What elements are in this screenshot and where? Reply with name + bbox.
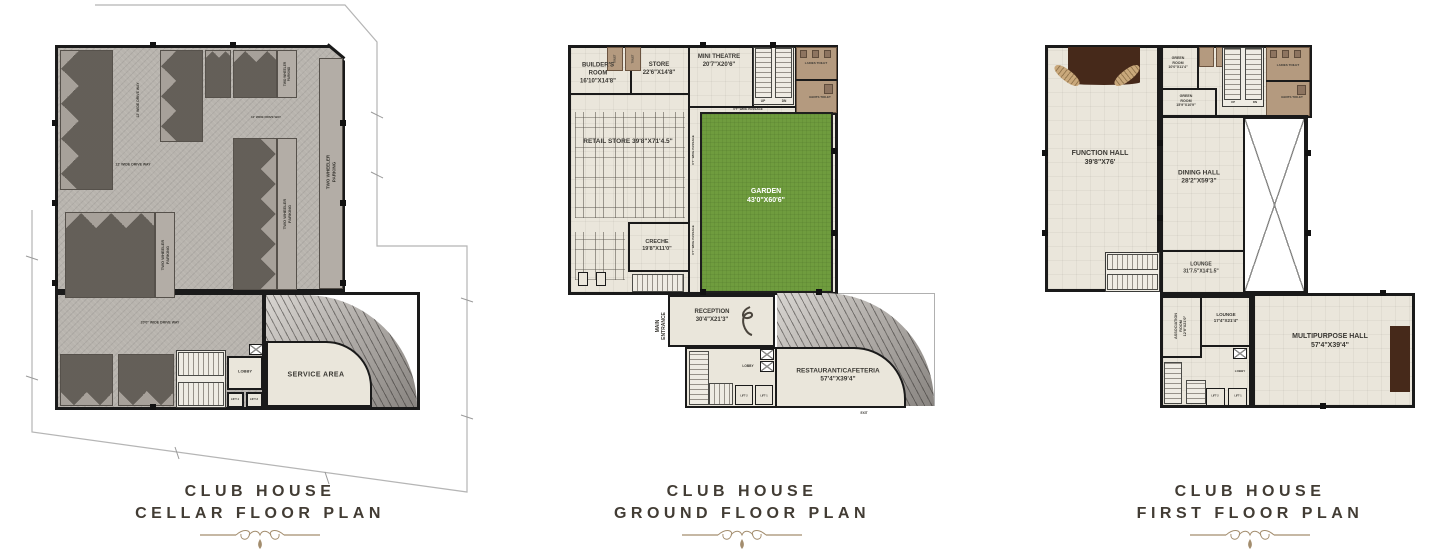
first-title-line1: CLUB HOUSE [1175,484,1326,500]
two-wheeler-parking-label: TWO WHEELER PARKING [283,62,291,86]
ladies-toilet-label: LADIES TOILET [805,62,827,66]
column-marker [340,200,346,206]
cellar-title-line1: CLUB HOUSE [185,484,336,500]
lift-label: LIFT-2 [250,398,258,402]
parking-stall-group [233,50,277,98]
toilet-fixture [1282,50,1289,58]
stair-run [1164,362,1182,404]
column-marker [150,42,156,48]
mini-theatre-label: MINI THEATRE 20'7"X20'6" [698,54,740,70]
duct-shaft [249,344,263,355]
lift-label: LIFT-2 [740,394,747,397]
multipurpose-stage [1390,326,1410,392]
stair-run [1245,48,1262,100]
column-marker [700,289,706,295]
driveway-label: 12' WIDE DRIVE WAY [251,116,281,120]
duct-shaft [760,361,774,372]
two-wheeler-parking-label: TWO WHEELER PARKING [325,155,336,189]
wall [1200,345,1252,347]
builders-room-label: BUILDER'S ROOM 16'10"X14'8" [580,62,616,85]
club-house-floor-plans: 12' WIDE DRIVE WAY 12' WIDE DRIVE WAY 12… [0,0,1442,560]
dining-hall-label: DINING HALL 28'2"X59'3" [1178,170,1220,187]
lift-label: LIFT-2 [1211,394,1218,397]
lobby-label: LOBBY [1235,370,1246,374]
gents-toilet-label: GENTS TOILET [1281,96,1303,100]
wall [1160,356,1202,358]
reception-label: RECEPTION 30'4"X21'3" [694,309,729,325]
column-marker [1320,403,1326,409]
reception-sculpture [738,305,756,337]
creche-label: CRECHE 19'8"X11'0" [642,239,672,253]
stair-run [1107,254,1158,270]
column-marker [150,404,156,410]
toilet-fixture [824,50,831,58]
retail-counter [596,272,606,286]
retail-racks [575,112,685,218]
ground-title-line1: CLUB HOUSE [667,484,818,500]
toilet-fixture [800,50,807,58]
store-label: STORE 22'6"X14'8" [643,62,676,78]
column-marker [52,120,58,126]
column-marker [230,42,236,48]
driveway-label: 12' WIDE DRIVE WAY [115,163,150,168]
retail-counter [578,272,588,286]
stair-run [178,352,224,376]
two-wheeler-parking-label: TWO WHEELER PARKING [282,199,292,229]
stair-run [689,351,709,405]
wall [796,79,837,81]
restaurant-label: RESTAURANT/CAFETERIA 57'4"X39'4" [796,368,879,385]
wall [688,45,690,295]
toilet-label: TOILET [613,55,616,64]
up-label: UP [761,99,765,103]
driveway-label: 20'0" WIDE DRIVE WAY [141,321,180,326]
wall [1160,88,1217,90]
wall [1160,250,1245,252]
lift-label: LIFT-1 [1234,394,1241,397]
column-marker [52,200,58,206]
exit-label: EXIT [860,411,867,415]
wall [628,222,688,224]
gents-toilet-label: GENTS TOILET [809,96,831,100]
dn-label: DN [782,99,787,103]
column-marker [1042,150,1048,156]
wall [568,93,690,95]
column-marker [340,280,346,286]
ground-title-line2: GROUND FLOOR PLAN [614,506,870,522]
duct-shaft [1233,348,1247,359]
parking-stall-group [160,50,203,142]
lift-label: LIFT-1 [760,394,767,397]
column-marker [700,42,706,48]
passage-label: 6'7" WIDE PASSAGE [733,108,762,112]
function-hall-label: FUNCTION HALL 39'8"X76' [1072,149,1129,167]
column-marker [1157,215,1163,221]
wall [628,222,630,272]
parking-stall-group [60,354,113,406]
parking-stall-group [65,212,155,298]
toilet-fixture [824,84,833,94]
passage-label: 6'7" WIDE PASSAGE [692,225,696,254]
stair-run [709,383,733,405]
main-entrance-label: MAIN ENTRANCE [655,312,668,340]
toilet-fixture [812,50,819,58]
association-room-label: ASSOCIATION ROOM 12'8"X21'0" [1174,313,1188,339]
column-marker [831,148,837,154]
stair-run [178,382,224,406]
title-ornament [198,526,322,552]
stair-run [1107,274,1158,290]
column-marker [1305,230,1311,236]
column-marker [816,289,822,295]
service-area-label: SERVICE AREA [288,370,345,379]
toilet-fixture [1270,50,1277,58]
up-label: UP [1231,101,1235,105]
dn-label: DN [1253,101,1257,105]
title-ornament [1188,526,1312,552]
multipurpose-hall-label: MULTIPURPOSE HALL 57'4"X39'4" [1292,332,1368,350]
stair-run [755,48,772,98]
column-marker [1380,290,1386,296]
site-line [934,293,935,406]
toilet-fixture [1297,85,1306,95]
garden-label: GARDEN 43'0"X60'6" [747,187,785,205]
stair-run [1186,380,1206,404]
lobby-label: LOBBY [238,368,252,373]
column-marker [831,230,837,236]
parking-stall-group [118,354,174,406]
toilet-fixture [1294,50,1301,58]
stair-run [775,48,792,98]
column-marker [1042,230,1048,236]
parking-stall-group [205,50,231,98]
stair-run [1224,48,1241,100]
lift-label: LIFT-1 [231,398,239,402]
retail-store-label: RETAIL STORE 39'8"X71'4.5" [583,138,672,146]
wall [1266,80,1310,82]
stair-run [632,274,684,292]
two-wheeler-parking-label: TWO WHEELER PARKING [160,240,170,270]
column-marker [1305,150,1311,156]
green-room-label: GREEN ROOM 10'0"X11'4" [1168,56,1187,70]
parking-stall-group [233,138,277,290]
column-marker [52,280,58,286]
column-marker [340,120,346,126]
site-line [838,293,935,294]
parking-stall-group [60,50,113,190]
ladies-toilet-label: LADIES TOILET [1277,64,1299,68]
first-title-line2: FIRST FLOOR PLAN [1137,506,1364,522]
driveway-label: 12' WIDE DRIVE WAY [136,82,140,117]
lounge-label: LOUNGE 31'7.5"X14'1.5" [1183,262,1218,275]
duct-shaft [760,349,774,360]
title-ornament [680,526,804,552]
wall [628,270,688,272]
wall [1215,88,1217,118]
toilet-label: TOILET [631,55,634,64]
open-to-below [1243,117,1306,293]
toilet-room [1199,47,1214,67]
column-marker [770,42,776,48]
lounge-label: LOUNGE 17'4"X21'4" [1214,312,1238,324]
cellar-title-line2: CELLAR FLOOR PLAN [135,506,385,522]
lobby-label: LOBBY [742,364,753,368]
wall [1200,295,1202,358]
column-marker [1157,140,1163,146]
green-room-label: GREEN ROOM 15'9"X10'9" [1176,94,1196,108]
passage-label: 6'7" WIDE PASSAGE [692,135,696,164]
